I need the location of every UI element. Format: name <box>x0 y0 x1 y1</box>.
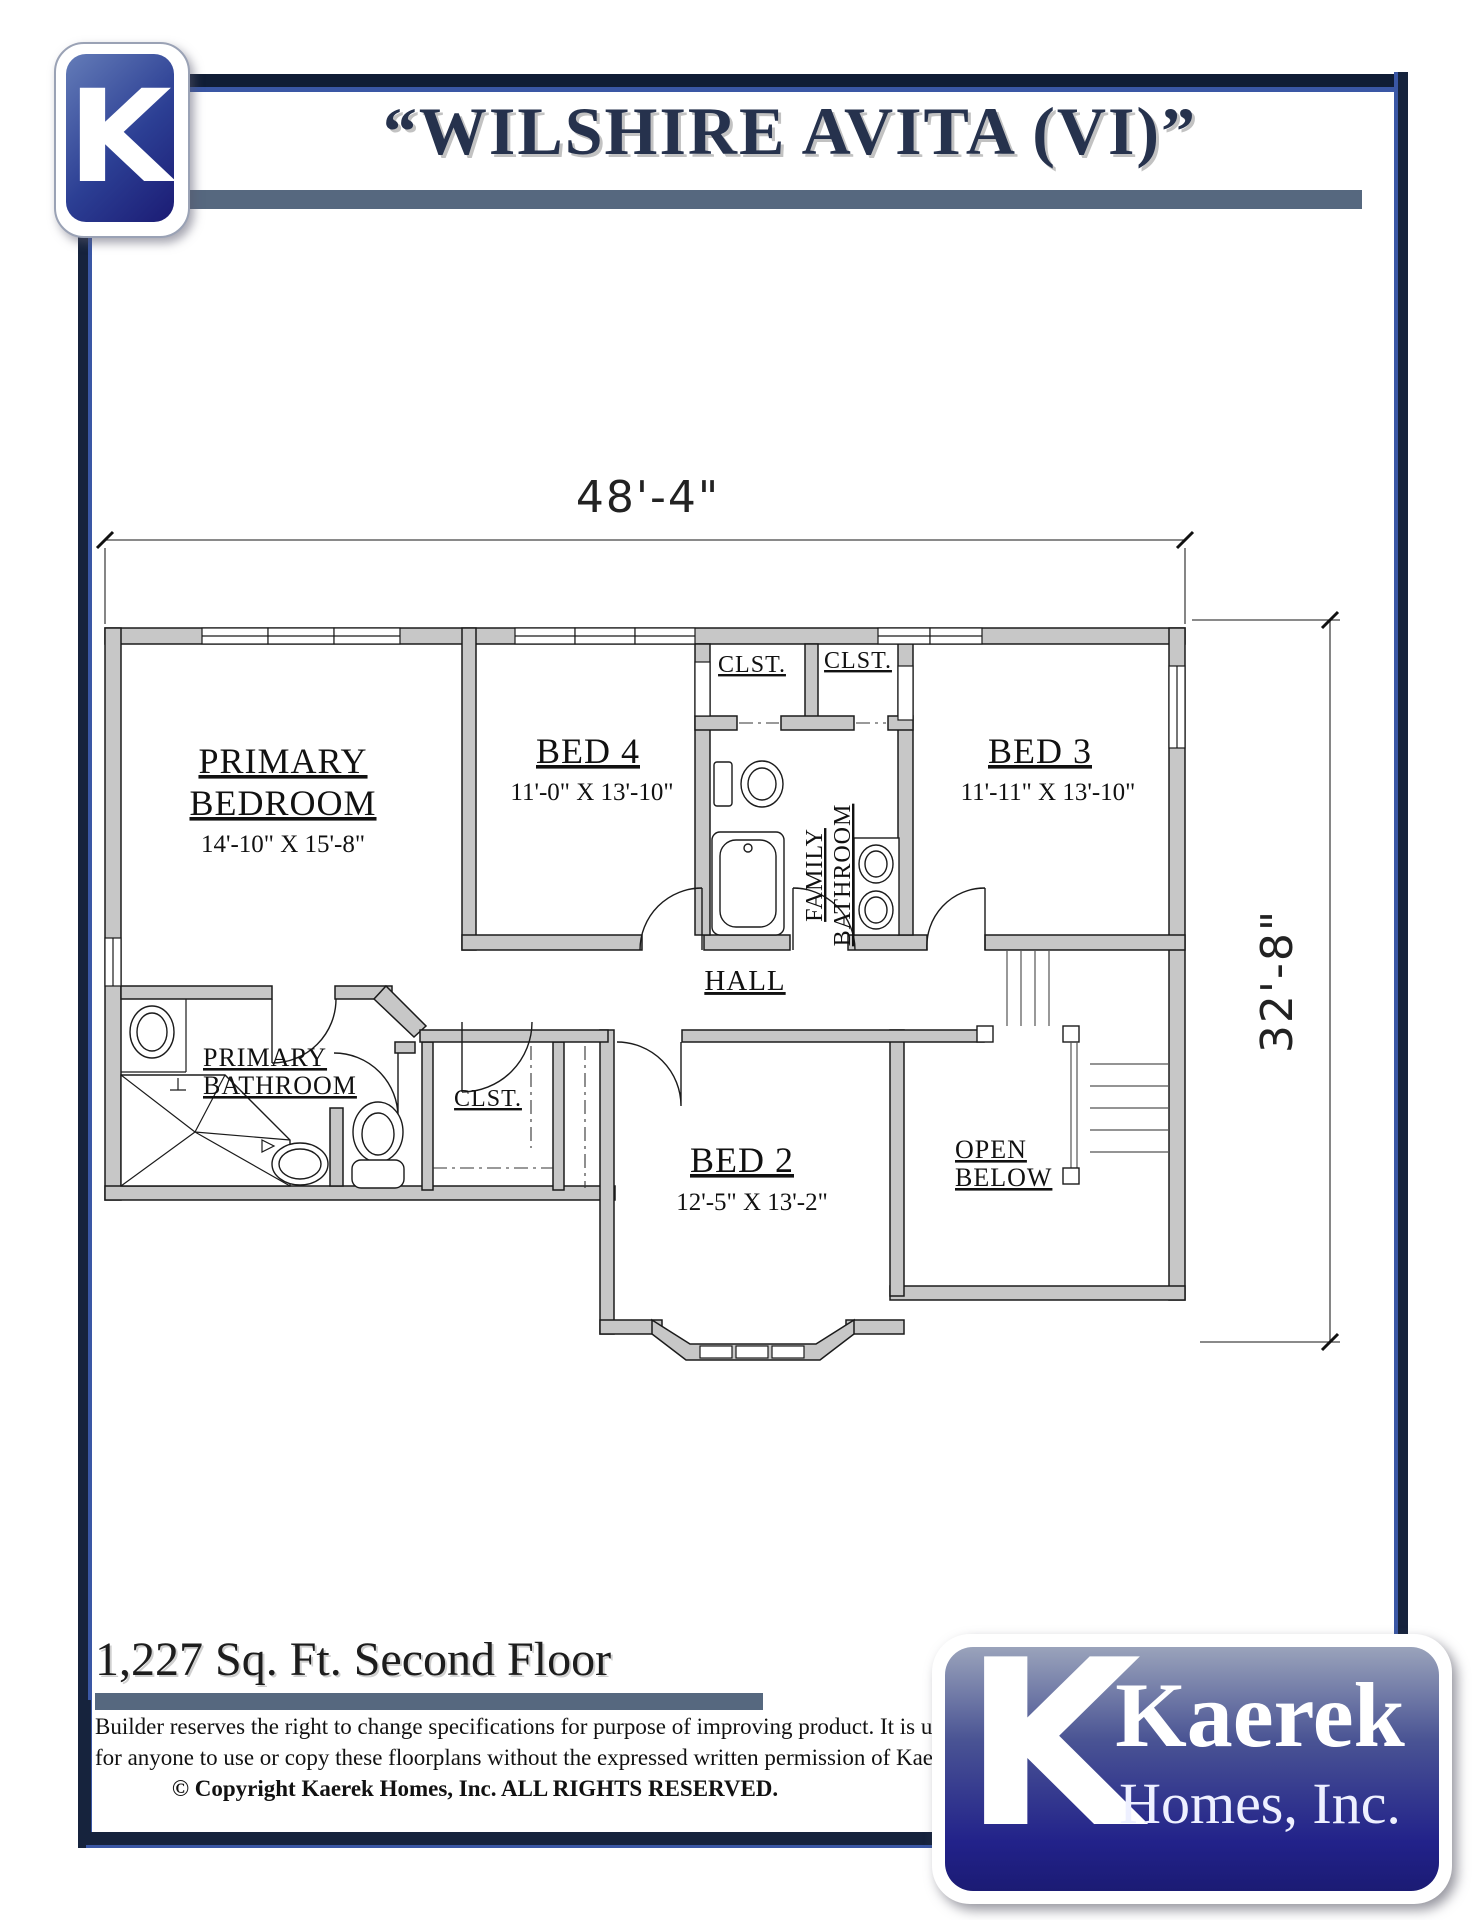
primary-bedroom-dims: 14'-10" X 15'-8" <box>201 831 365 858</box>
kaerek-homes-logo: K Kaerek Homes, Inc. <box>932 1634 1452 1904</box>
brand-name-line-2: Homes, Inc. <box>1095 1775 1425 1833</box>
bed3-dims: 11'-11" X 13'-10" <box>961 779 1136 806</box>
family-bath-tub <box>712 832 784 935</box>
water-closet-toilet <box>352 1102 404 1188</box>
bay-window-panes <box>700 1346 804 1358</box>
dimension-width: 48'-4" <box>97 472 1193 624</box>
floorplan-page: “WILSHIRE AVITA (VI)” K 48'-4" 32'-8" <box>0 0 1484 1920</box>
square-footage-label: 1,227 Sq. Ft. Second Floor <box>95 1632 611 1687</box>
disclaimer-line-2: for anyone to use or copy these floorpla… <box>95 1745 855 1771</box>
overall-height-label: 32'-8" <box>1252 909 1303 1053</box>
family-bath-label-1: FAMILY <box>802 828 828 922</box>
disclaimer-line-1: Builder reserves the right to change spe… <box>95 1714 855 1740</box>
dimension-height: 32'-8" <box>1192 612 1340 1350</box>
primary-bath-label-2: BATHROOM <box>203 1071 357 1100</box>
disclaimer-box-left-border <box>86 1700 91 1832</box>
hall-label: HALL <box>704 965 785 997</box>
closet1-label: CLST. <box>718 652 786 678</box>
kaerek-homes-logo-panel: K Kaerek Homes, Inc. <box>945 1647 1439 1891</box>
family-bath-toilet <box>714 761 783 807</box>
closet2-label: CLST. <box>824 648 892 674</box>
closet3-label: CLST. <box>454 1086 522 1112</box>
open-below-label-1: OPEN <box>955 1135 1027 1164</box>
footer-divider-bar <box>95 1693 763 1710</box>
brand-name-line-1: Kaerek <box>1095 1669 1425 1761</box>
primary-bath-sink <box>121 999 186 1072</box>
bed3-label: BED 3 <box>988 731 1092 771</box>
bed4-label: BED 4 <box>536 731 640 771</box>
primary-bath-basin <box>272 1143 328 1185</box>
bed2-label: BED 2 <box>690 1140 794 1180</box>
overall-width-label: 48'-4" <box>576 472 720 523</box>
open-below-label-2: BELOW <box>955 1163 1052 1192</box>
stair-railing <box>1071 1042 1077 1168</box>
primary-bedroom-label-1: PRIMARY <box>198 741 367 781</box>
bed2-dims: 12'-5" X 13'-2" <box>676 1189 828 1216</box>
primary-bedroom-label-2: BEDROOM <box>189 783 376 823</box>
bed4-dims: 11'-0" X 13'-10" <box>510 779 673 806</box>
disclaimer-line-3: © Copyright Kaerek Homes, Inc. ALL RIGHT… <box>95 1776 855 1802</box>
family-bath-label-2: BATHROOM <box>830 804 856 947</box>
primary-bath-label-1: PRIMARY <box>203 1043 327 1072</box>
disclaimer-box-bottom-border <box>86 1832 948 1848</box>
family-bath-vanity <box>854 838 899 935</box>
